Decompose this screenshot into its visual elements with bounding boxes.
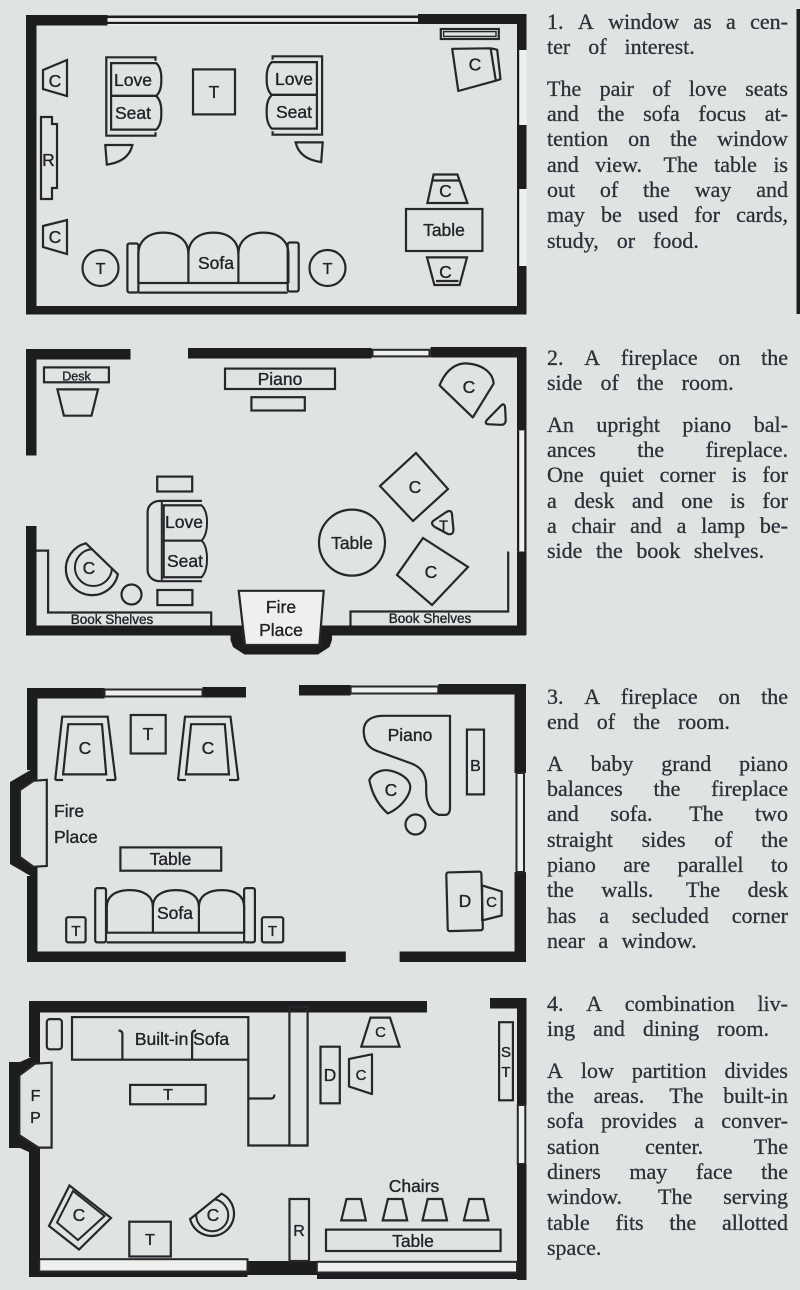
svg-text:C: C — [83, 558, 96, 578]
svg-text:C: C — [463, 377, 476, 397]
svg-text:Place: Place — [54, 827, 98, 847]
svg-text:Table: Table — [150, 849, 192, 869]
svg-text:C: C — [49, 71, 62, 91]
svg-text:C: C — [439, 262, 452, 282]
svg-text:T: T — [96, 261, 106, 278]
svg-text:C: C — [49, 227, 62, 247]
svg-text:Place: Place — [259, 620, 303, 640]
svg-text:C: C — [79, 738, 92, 758]
svg-text:C: C — [425, 562, 438, 582]
svg-text:Love: Love — [114, 70, 152, 90]
svg-text:T: T — [439, 519, 448, 535]
svg-text:D: D — [324, 1065, 337, 1085]
svg-text:F: F — [31, 1088, 41, 1105]
svg-text:T: T — [209, 82, 220, 102]
svg-text:C: C — [73, 1205, 86, 1225]
svg-text:Fire: Fire — [266, 597, 296, 617]
svg-text:Chairs: Chairs — [389, 1176, 440, 1196]
svg-text:R: R — [42, 150, 55, 170]
svg-text:S: S — [501, 1044, 511, 1061]
svg-text:P: P — [30, 1110, 41, 1127]
svg-text:Book Shelves: Book Shelves — [71, 612, 154, 627]
svg-text:T: T — [323, 261, 333, 278]
svg-text:Sofa: Sofa — [198, 253, 234, 273]
svg-text:C: C — [439, 181, 452, 201]
svg-text:Love: Love — [165, 512, 203, 532]
svg-text:Table: Table — [331, 533, 373, 553]
svg-text:R: R — [293, 1223, 305, 1240]
svg-text:Love: Love — [275, 69, 313, 89]
svg-text:T: T — [163, 1087, 173, 1104]
svg-text:T: T — [268, 923, 277, 940]
svg-text:Sofa: Sofa — [157, 903, 193, 923]
svg-text:Seat: Seat — [115, 103, 151, 123]
svg-text:T: T — [501, 1064, 510, 1081]
svg-text:D: D — [459, 891, 472, 911]
svg-text:B: B — [470, 758, 481, 775]
svg-text:T: T — [145, 1232, 155, 1249]
svg-text:C: C — [486, 894, 497, 911]
svg-text:C: C — [356, 1067, 367, 1084]
svg-text:T: T — [143, 724, 154, 744]
svg-text:Piano: Piano — [258, 369, 303, 389]
svg-text:Table: Table — [392, 1231, 434, 1251]
svg-text:C: C — [469, 55, 482, 75]
svg-text:Seat: Seat — [276, 102, 312, 122]
svg-text:Table: Table — [423, 220, 465, 240]
svg-text:Book Shelves: Book Shelves — [389, 611, 472, 626]
svg-text:Desk: Desk — [62, 370, 91, 384]
svg-text:Fire: Fire — [54, 801, 84, 821]
svg-text:C: C — [207, 1205, 220, 1225]
svg-text:C: C — [202, 738, 215, 758]
svg-text:Built-in Sofa: Built-in Sofa — [135, 1029, 230, 1049]
svg-text:Seat: Seat — [167, 551, 203, 571]
svg-text:C: C — [409, 477, 422, 497]
svg-text:Piano: Piano — [388, 725, 433, 745]
svg-text:C: C — [375, 1024, 386, 1041]
svg-text:C: C — [385, 780, 398, 800]
svg-text:T: T — [71, 923, 80, 940]
